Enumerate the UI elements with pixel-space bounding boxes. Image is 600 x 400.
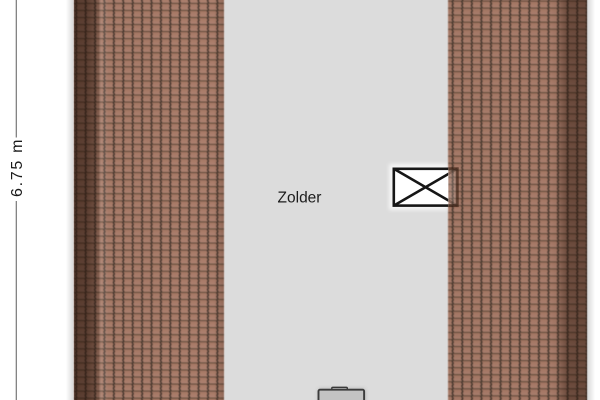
svg-text:Zolder: Zolder: [278, 189, 322, 206]
svg-text:6.75 m: 6.75 m: [9, 138, 26, 197]
